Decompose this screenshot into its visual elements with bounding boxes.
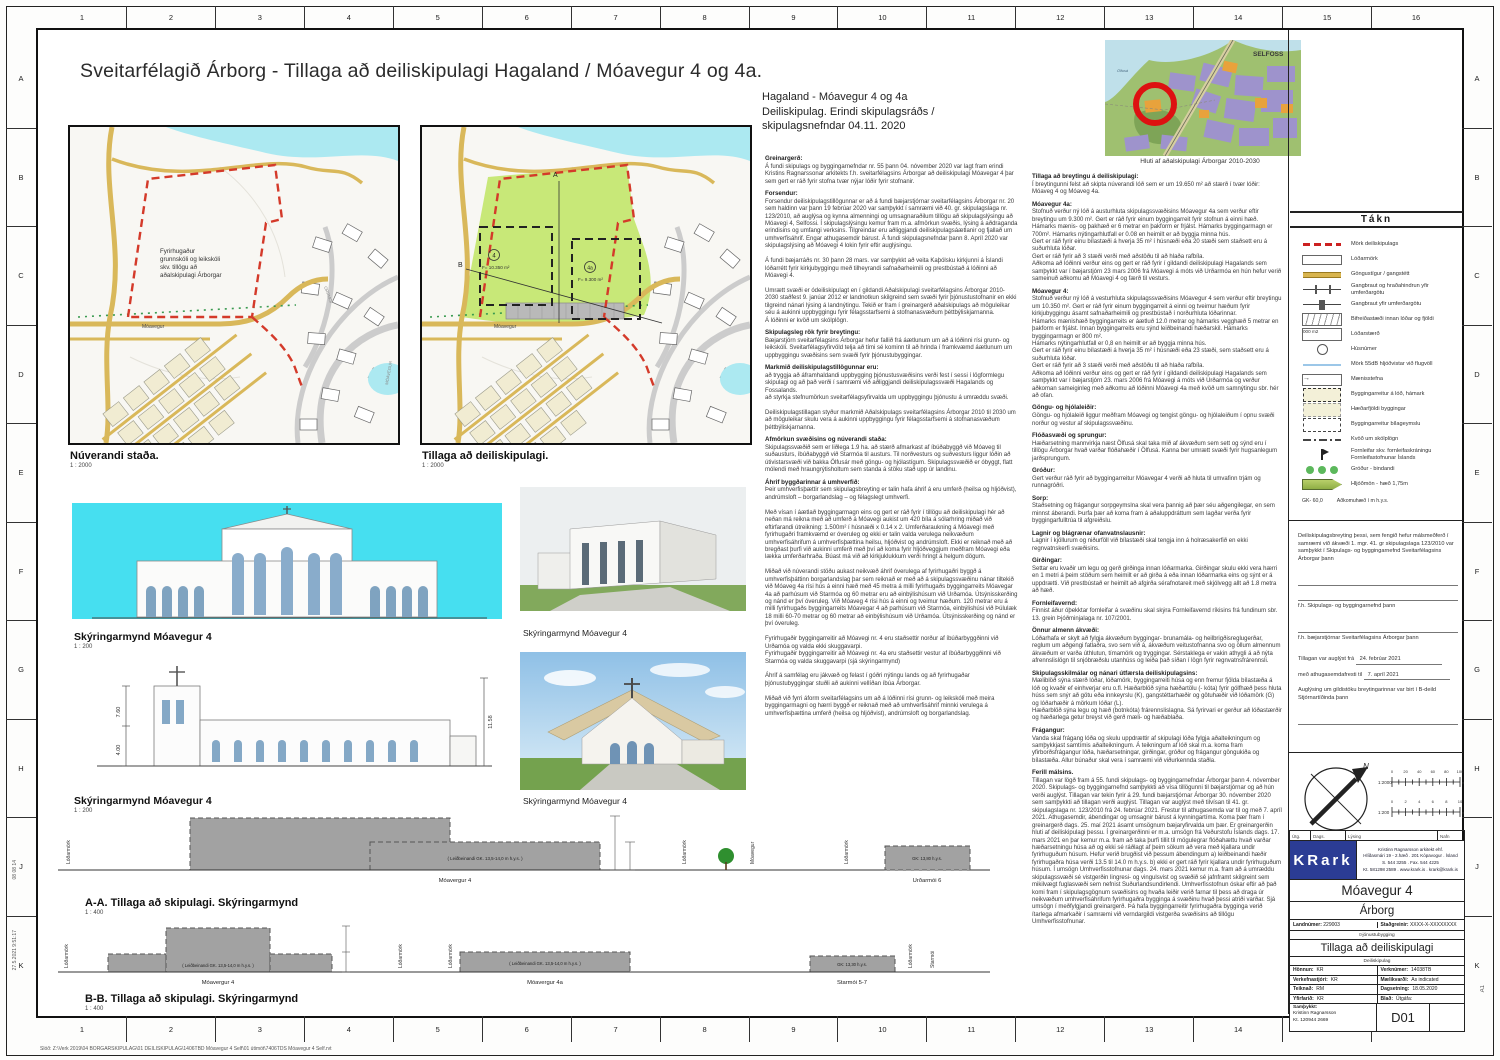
report-section: Tillaga að breytingu á deiliskipulagi:Í … (1032, 173, 1282, 197)
legend-item-label: Gangbraut og hraðahindrun yfir umferðarg… (1351, 283, 1459, 296)
approval-label: f.h. bæjarstjórnar Sveitarfélagsins Árbo… (1298, 635, 1458, 643)
grid-col-label: 6 (483, 6, 572, 28)
grid-col-label: 6 (483, 1016, 572, 1042)
grid-col-label: 1 (38, 1016, 127, 1042)
grid-row-label: H (6, 720, 36, 819)
grid-col-label: 13 (1105, 1016, 1194, 1042)
signature-line (1298, 620, 1458, 633)
grid-band-top: 12345678910111213141516 (38, 6, 1460, 28)
legend-symbol: → (1302, 374, 1342, 386)
elevation-side: 7.60 4.00 11.58 (72, 658, 502, 790)
meta-row: Yfirfarið:KR Blað:Útgáfa: (1290, 995, 1464, 1005)
grid-band-bottom: 12345678910111213141516 (38, 1016, 1460, 1042)
building-use: Þjónustubygging (1290, 931, 1464, 940)
dim-label: 4.00 (116, 745, 122, 756)
legend-item: Gangbraut yfir umferðargötu (1302, 297, 1459, 312)
plot-4a-number: 4a (587, 266, 593, 272)
firm-info: Kristinn Ragnarsson arkitekt ehf.Hlíðasm… (1357, 846, 1464, 874)
map-proposal-svg: 4 F= 10.350 m² 4a F= 9.300 m² A B Móaveg… (422, 127, 750, 443)
map-current-caption: Núverandi staða.1 : 2000 (70, 450, 159, 469)
north-label: N (1363, 762, 1369, 771)
svg-text:2: 2 (1404, 799, 1407, 804)
legend-title: Tákn (1290, 211, 1463, 228)
grid-col-label: 12 (1016, 6, 1105, 28)
elevation-front-caption: Skýringarmynd Móavegur 41 : 200 (74, 631, 212, 650)
svg-text:m: m (1462, 810, 1464, 815)
report-column-1: Greinargerð:Á fundi skipulags og bygging… (765, 155, 1018, 722)
street-label: Móavegur (750, 841, 756, 864)
legend-symbol (1302, 313, 1342, 326)
plot-4a-area: F= 9.300 m² (578, 277, 603, 282)
grid-row-label: J (1462, 818, 1492, 917)
legend-item-label: Mænisstefna (1351, 376, 1459, 382)
report-section: Forsendur:Forsendur deiliskipulagstillög… (765, 190, 1018, 325)
street-label: Móavegur (142, 324, 165, 330)
legend-item: Lóðarmörk (1302, 252, 1459, 267)
legend-item: Bifreiðastæði innan lóðar og fjöldi (1302, 312, 1459, 327)
grid-row-label: B (6, 129, 36, 228)
title-block-meta: Hönnun:KR Verknúmer:14038TB Verkefnastjó… (1290, 966, 1464, 1004)
sheet-number: D01 (1377, 1004, 1430, 1031)
legend-symbol (1302, 364, 1342, 366)
section-mark-b: B (458, 262, 463, 269)
building-label: Móavergur 4 (439, 878, 472, 884)
grid-col-label: 10 (838, 1016, 927, 1042)
grid-row-label: D (6, 326, 36, 425)
gk-value: GK: 13,30 h.y.s. (837, 962, 867, 967)
legend-item-label: Göngustígur / gangstétt (1351, 271, 1459, 277)
svg-text:m: m (1462, 780, 1464, 785)
meta-row: Hönnun:KR Verknúmer:14038TB (1290, 966, 1464, 976)
report-section: Girðingar:Settar eru kvaðir um legu og g… (1032, 557, 1282, 595)
legend-symbol (1302, 466, 1342, 474)
grid-col-label: 4 (305, 6, 394, 28)
grid-row-label: F (6, 523, 36, 622)
section-mark-a: A (553, 172, 558, 179)
signature-line (1298, 573, 1458, 586)
advertised-from: Tillagan var auglýst frá 24. febrúar 202… (1298, 656, 1458, 665)
report-section: Göngu- og hjólaleiðir:Göngu- og hjólalei… (1032, 404, 1282, 428)
scale-bars: 1:2000 020406080100 m 1:200 0246810 m (1378, 762, 1464, 834)
map-current-state: Fyrirhugaður grunnskóli og leikskóli skv… (68, 125, 400, 445)
document-title: Tillaga að deiliskipulagi (1290, 940, 1464, 957)
panel-divider (1288, 752, 1463, 753)
street-label: Starmói (930, 951, 936, 968)
legend-item-label: Hæðarfjöldi byggingar (1351, 406, 1459, 412)
building-label: Móavergur 4a (527, 980, 564, 986)
legend-item-label: Bifreiðastæði innan lóðar og fjöldi (1351, 316, 1459, 322)
grid-col-label: 9 (750, 6, 839, 28)
legend-item: Mörk deiliskipulags (1302, 237, 1459, 252)
signature-line (1298, 712, 1458, 725)
legend-symbol (1302, 285, 1342, 295)
grid-row-label: K (6, 917, 36, 1015)
svg-text:6: 6 (1432, 799, 1435, 804)
legend-symbol: 000 m2 (1302, 328, 1342, 341)
report-section: Skipulagsskilmálar og nánari útfærsla de… (1032, 670, 1282, 723)
building-label: Starmói 5-7 (837, 980, 867, 986)
legend-symbol (1302, 439, 1342, 441)
grid-col-label: 5 (394, 1016, 483, 1042)
grid-col-label: 8 (661, 1016, 750, 1042)
lot-boundary-label: Lóðarmörk (843, 840, 850, 864)
report-section: Ferill málsins.Tillagan var lögð fram á … (1032, 769, 1282, 926)
grid-col-label: 5 (394, 6, 483, 28)
project-name: Móavegur 4 (1290, 880, 1464, 902)
render-photo-1 (520, 487, 746, 611)
grid-col-label: 12 (1016, 1016, 1105, 1042)
section-aa-drawing: ( Leiðbeinandi GK. 13,5-14,0 m h.y.s. ) … (40, 812, 1015, 892)
legend-symbol (1302, 403, 1342, 417)
grid-col-label: 11 (927, 1016, 1016, 1042)
sheet-size-label: A1 (1480, 985, 1486, 992)
gk-note: ( Leiðbeinandi GK. 13,5-14,0 m h.y.s. ) (182, 963, 254, 968)
legend-item-label: Byggingarreitur bílageymslu (1351, 421, 1459, 427)
legend-symbol (1302, 449, 1342, 460)
grid-col-label: 3 (216, 1016, 305, 1042)
building-label: Móavergur 4 (202, 980, 235, 986)
grid-row-label: J (6, 818, 36, 917)
grid-row-label: F (1462, 523, 1492, 622)
legend-panel: Tákn Mörk deiliskipulags Lóðarmörk Göngu… (1290, 211, 1463, 504)
report-section: Móavegur 4:Stofnuð verður ný lóð á vestu… (1032, 288, 1282, 401)
school-note-line: Fyrirhugaður (160, 248, 195, 255)
grid-row-label: A (6, 30, 36, 129)
grid-row-label: B (1462, 129, 1492, 228)
legend-item: Gróður - bindandi (1302, 462, 1459, 477)
legend-item-label: Mörk deiliskipulags (1351, 241, 1459, 247)
gildistaka-note: Auglýsing um gildistöku breytingarinnar … (1298, 687, 1458, 702)
school-note-line: aðalskipulagi Árborgar (160, 272, 222, 279)
approval-block: Deiliskipulagsbreyting þessi, sem fengið… (1298, 533, 1458, 727)
street-label: Móavegur (494, 324, 517, 330)
report-section: Önnur almenn ákvæði:Lóðarhafa er skylt a… (1032, 627, 1282, 665)
report-section: Markmið deiliskipulagstillögunnar eru:að… (765, 364, 1018, 432)
report-section: Áhrif byggðarinnar á umhverfið:Þeir umhv… (765, 479, 1018, 718)
meta-row: Teiknað:RM Dagsetning:18.05.2020 (1290, 985, 1464, 995)
grid-col-label: 3 (216, 6, 305, 28)
legend-item: → Mænisstefna (1302, 372, 1459, 387)
grid-row-label: A (1462, 30, 1492, 129)
render-photo-1-caption: Skýringarmynd Móavegur 4 (523, 628, 627, 638)
comment-deadline: með athugasemdafresti til 7. apríl 2021 (1298, 672, 1458, 681)
north-arrow: N (1294, 757, 1378, 841)
map-proposal: 4 F= 10.350 m² 4a F= 9.300 m² A B Móaveg… (420, 125, 752, 445)
legend-symbol (1302, 300, 1342, 310)
grid-row-label: E (1462, 424, 1492, 523)
legend-item: Göngustígur / gangstétt (1302, 267, 1459, 282)
land-number: Landnúmer: 229003 (1290, 922, 1378, 928)
lot-boundary-label: Lóðarmörk (63, 944, 70, 968)
signature-line (1298, 588, 1458, 601)
dim-label: 11.58 (488, 715, 494, 728)
legend-symbol (1302, 388, 1342, 402)
svg-text:8: 8 (1445, 799, 1448, 804)
grid-row-label: C (6, 227, 36, 326)
gk-note: ( Leiðbeinandi GK. 13,5-14,0 m h.y.s. ) (509, 961, 581, 966)
grid-row-label: E (6, 424, 36, 523)
section-bb-drawing: ( Leiðbeinandi GK. 13,5-14,0 m h.y.s. ) … (40, 920, 1015, 992)
legend-item: Húsnúmer (1302, 342, 1459, 357)
grid-col-label: 9 (750, 1016, 839, 1042)
section-bb-caption: B-B. Tillaga að skipulagi. Skýringarmynd… (85, 993, 298, 1012)
legend-item: Hæðarfjöldi byggingar (1302, 402, 1459, 417)
gk-symbol: GK- 60,0 (1302, 498, 1323, 504)
map-current-svg: Fyrirhugaður grunnskóli og leikskóli skv… (70, 127, 398, 443)
legend-symbol (1302, 344, 1342, 355)
grid-band-right: ABCDEFGHJK (1462, 30, 1492, 1014)
grid-col-label: 16 (1372, 6, 1460, 28)
grid-col-label: 11 (927, 6, 1016, 28)
elevation-front (72, 503, 502, 627)
gk-label: Aðkomuhæð í m h.y.s. (1337, 498, 1389, 504)
section-aa-caption: A-A. Tillaga að skipulagi. Skýringarmynd… (85, 897, 298, 916)
lot-boundary-label: Lóðarmörk (397, 944, 404, 968)
svg-text:0: 0 (1391, 769, 1394, 774)
document-subtitle: Deiliskipulag (1290, 957, 1464, 966)
report-section: Fornleifavernd:Finnist áður óþekktar for… (1032, 600, 1282, 624)
masterplan-overview-map: SELFOSS Ölfusá (1105, 40, 1301, 156)
building-label: Urðarmói 6 (913, 877, 942, 884)
render-photo-2-caption: Skýringarmynd Móavegur 4 (523, 796, 627, 806)
lot-boundary-label: Lóðarmörk (65, 840, 72, 864)
legend-item: Hljóðmön - hæð 1,75m (1302, 477, 1459, 492)
legend-item-label: Kvöð um skólplögn (1351, 436, 1459, 442)
scale-200-label: 1:200 (1378, 810, 1390, 815)
report-section: Móavegur 4a:Stofnuð verður ný lóð á aust… (1032, 201, 1282, 284)
legend-symbol (1302, 255, 1342, 265)
grid-band-left: ABCDEFGHJK (6, 30, 36, 1014)
municipality-name: Árborg (1290, 902, 1464, 920)
svg-text:4: 4 (1418, 799, 1421, 804)
svg-text:100: 100 (1457, 769, 1464, 774)
legend-item-label: Lóðarstærð (1351, 331, 1459, 337)
grid-col-label: 1 (38, 6, 127, 28)
report-section: Afmörkun svæðisins og núverandi staða:Sk… (765, 436, 1018, 474)
grid-col-label: 15 (1283, 6, 1372, 28)
legend-item: 000 m2 Lóðarstærð (1302, 327, 1459, 342)
file-path: Slóð: Z:\Verk 2019\04 BORGARSKIPULAG\01 … (40, 1046, 332, 1052)
grid-col-label: 7 (572, 1016, 661, 1042)
svg-text:10: 10 (1458, 799, 1463, 804)
page-title: Sveitarfélagið Árborg - Tillaga að deili… (80, 60, 762, 83)
lot-boundary-label: Lóðarmörk (907, 944, 914, 968)
grid-row-label: G (1462, 621, 1492, 720)
approved-by: Samþykkt: Kristinn Ragnarsson Kt. 120944… (1290, 1004, 1377, 1031)
legend-item: Mörk 55dB hljóðvistar við flugvöll (1302, 357, 1459, 372)
lot-boundary-label: Lóðarmörk (681, 840, 688, 864)
approval-intro: Deiliskipulagsbreyting þessi, sem fengið… (1298, 533, 1458, 563)
plot-4-area: F= 10.350 m² (482, 265, 510, 270)
report-section: Flóðasvæði og sprungur:Hæðarsetning mann… (1032, 432, 1282, 463)
grid-col-label: 14 (1194, 1016, 1283, 1042)
grid-col-label: 13 (1105, 6, 1194, 28)
legend-symbol (1302, 418, 1342, 432)
grid-row-label: C (1462, 227, 1492, 326)
report-section: Skipulagsleg rök fyrir breytingu:Bæjarst… (765, 329, 1018, 360)
meta-row: Verkefnastjóri:KR Mælikvarði:As indicate… (1290, 976, 1464, 986)
svg-text:20: 20 (1403, 769, 1408, 774)
grid-row-label: H (1462, 720, 1492, 819)
school-note-line: grunnskóli og leikskóli (160, 256, 220, 263)
scale-2000-label: 1:2000 (1378, 780, 1392, 785)
gk-note: ( Leiðbeinandi GK. 13,5-14,0 m h.y.s. ) (447, 856, 523, 861)
grid-col-label: 4 (305, 1016, 394, 1042)
grid-col-label: 14 (1194, 6, 1283, 28)
plot-stamp: 08 08 14 (12, 860, 18, 879)
legend-item-label: Fornleifar skv. fornleifaskráningu Fornl… (1351, 448, 1459, 461)
report-section: Gróður:Gert verður ráð fyrir að bygginga… (1032, 467, 1282, 491)
grid-row-label: K (1462, 917, 1492, 1015)
report-section: Lagnir og blágrænar ofanvatnslausnir:Lag… (1032, 530, 1282, 554)
header-note: Hagaland - Móavegur 4 og 4a Deiliskipula… (762, 90, 1032, 134)
plot-timestamp: 27.5.2021 9:51:17 (12, 930, 18, 970)
svg-text:40: 40 (1417, 769, 1422, 774)
legend-item: Byggingarreitur á lóð, hámark (1302, 387, 1459, 402)
grid-row-label: G (6, 621, 36, 720)
legend-item-label: Lóðarmörk (1351, 256, 1459, 262)
legend-item: Kvöð um skólplögn (1302, 432, 1459, 447)
legend-footer: GK- 60,0 Aðkomuhæð í m h.y.s. (1290, 492, 1463, 504)
legend-items: Mörk deiliskipulags Lóðarmörk Göngustígu… (1290, 228, 1463, 492)
report-section: Frágangur:Vanda skal frágang lóða og sku… (1032, 727, 1282, 765)
gk-value: GK: 13,80 h.y.s. (912, 856, 942, 861)
stadgreinir: Staðgreinir: XXXX-X-XXXXXXXX (1378, 922, 1465, 928)
svg-text:0: 0 (1391, 799, 1394, 804)
grid-col-label: 10 (838, 6, 927, 28)
svg-text:80: 80 (1444, 769, 1449, 774)
firm-logo: KRark (1290, 841, 1357, 879)
report-section: Greinargerð:Á fundi skipulags og bygging… (765, 155, 1018, 186)
render-photo-2 (520, 652, 746, 790)
grid-col-label: 2 (127, 1016, 216, 1042)
title-block: KRark Kristinn Ragnarsson arkitekt ehf.H… (1289, 840, 1465, 1032)
grid-col-label: 8 (661, 6, 750, 28)
legend-item-label: Byggingarreitur á lóð, hámark (1351, 391, 1459, 397)
river-label: Ölfusá (1117, 69, 1128, 73)
panel-divider (1288, 520, 1463, 521)
svg-text:60: 60 (1431, 769, 1436, 774)
legend-symbol (1302, 243, 1342, 246)
map-proposal-caption: Tillaga að deiliskipulagi.1 : 2000 (422, 450, 548, 469)
legend-symbol (1302, 479, 1342, 490)
overview-caption: Hluti af aðalskipulagi Árborgar 2010-203… (1085, 158, 1315, 165)
grid-col-label: 7 (572, 6, 661, 28)
dim-label: 7.60 (116, 707, 122, 718)
grid-col-label: 2 (127, 6, 216, 28)
legend-item-label: Mörk 55dB hljóðvistar við flugvöll (1351, 361, 1459, 367)
report-section: Sorp:Staðsetning og frágangur sorpgeymsl… (1032, 495, 1282, 526)
report-column-2: Tillaga að breytingu á deiliskipulagi:Í … (1032, 173, 1282, 931)
legend-item: Gangbraut og hraðahindrun yfir umferðarg… (1302, 282, 1459, 297)
school-note-line: skv. tillögu að (160, 264, 198, 271)
issue-cell (1430, 1004, 1464, 1031)
legend-item-label: Gangbraut yfir umferðargötu (1351, 301, 1459, 307)
legend-symbol (1302, 272, 1342, 278)
approval-label: f.h. Skipulags- og byggingarnefnd þann (1298, 603, 1458, 611)
city-label: SELFOSS (1253, 51, 1284, 58)
lot-boundary-label: Lóðarmörk (447, 944, 454, 968)
legend-item: Byggingarreitur bílageymslu (1302, 417, 1459, 432)
grid-row-label: D (1462, 326, 1492, 425)
legend-item: Fornleifar skv. fornleifaskráningu Fornl… (1302, 447, 1459, 462)
legend-item-label: Gróður - bindandi (1351, 466, 1459, 472)
legend-item-label: Húsnúmer (1351, 346, 1459, 352)
legend-item-label: Hljóðmön - hæð 1,75m (1351, 481, 1459, 487)
